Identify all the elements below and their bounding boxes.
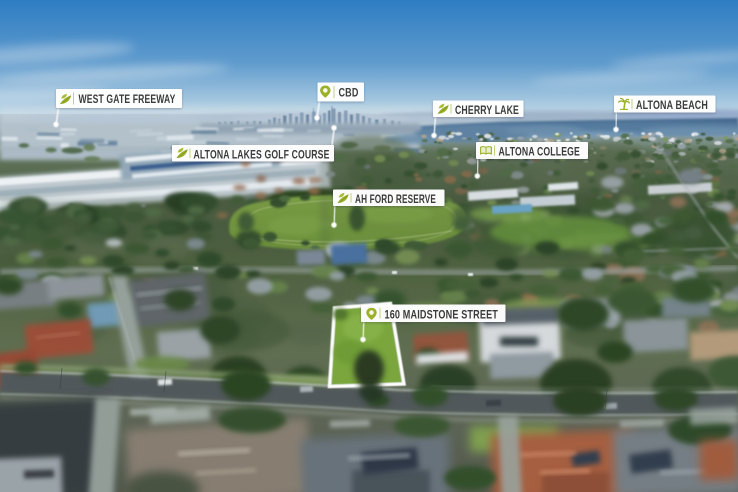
svg-text:160 MAIDSTONE STREET: 160 MAIDSTONE STREET	[385, 309, 499, 321]
svg-text:ALTONA LAKES GOLF COURSE: ALTONA LAKES GOLF COURSE	[194, 149, 330, 161]
svg-text:WEST GATE FREEWAY: WEST GATE FREEWAY	[79, 94, 176, 106]
svg-text:CHERRY LAKE: CHERRY LAKE	[455, 105, 519, 117]
svg-text:ALTONA BEACH: ALTONA BEACH	[636, 100, 708, 112]
svg-text:AH FORD RESERVE: AH FORD RESERVE	[355, 194, 436, 206]
svg-text:CBD: CBD	[339, 88, 359, 100]
svg-text:ALTONA COLLEGE: ALTONA COLLEGE	[499, 146, 581, 158]
